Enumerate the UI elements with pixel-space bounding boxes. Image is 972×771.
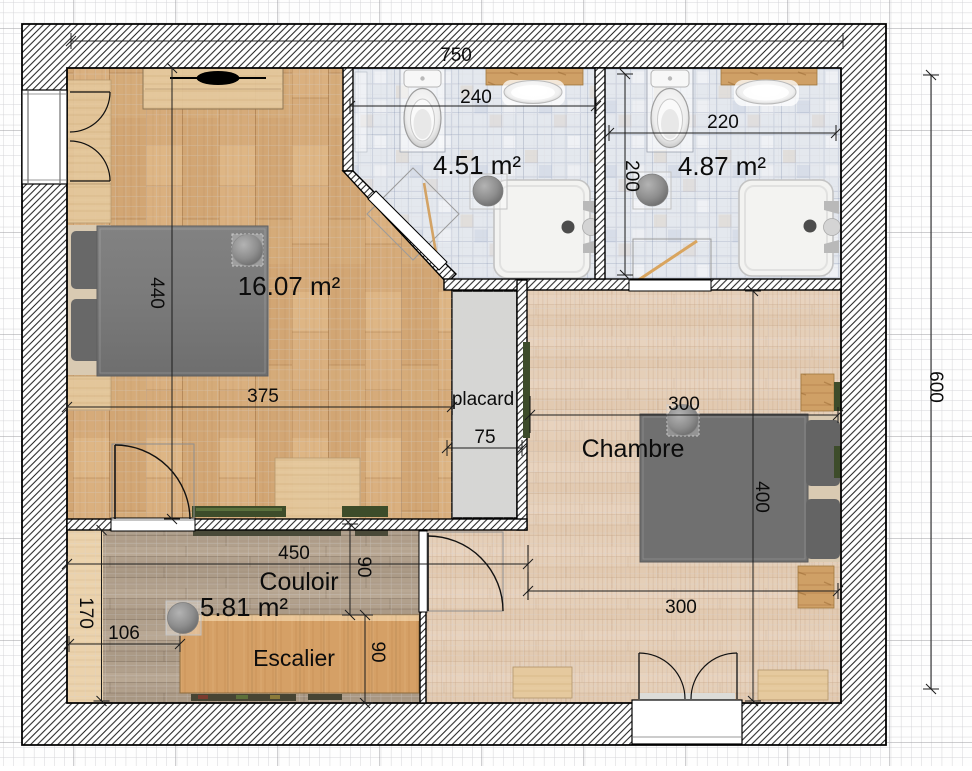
svg-text:170: 170 xyxy=(75,597,96,629)
svg-text:5.81 m²: 5.81 m² xyxy=(200,592,288,622)
svg-text:440: 440 xyxy=(146,277,167,309)
svg-text:220: 220 xyxy=(707,112,739,133)
svg-text:106: 106 xyxy=(108,623,140,644)
svg-text:240: 240 xyxy=(460,87,492,108)
svg-text:450: 450 xyxy=(278,543,310,564)
svg-text:300: 300 xyxy=(665,597,697,618)
svg-text:600: 600 xyxy=(925,371,946,403)
svg-text:Chambre: Chambre xyxy=(582,435,685,463)
svg-text:Escalier: Escalier xyxy=(253,645,335,671)
svg-text:200: 200 xyxy=(621,160,642,192)
svg-text:75: 75 xyxy=(474,427,495,448)
svg-text:4.51 m²: 4.51 m² xyxy=(433,150,521,180)
svg-text:placard: placard xyxy=(452,389,514,410)
svg-text:750: 750 xyxy=(440,45,472,66)
svg-text:375: 375 xyxy=(247,386,279,407)
svg-text:4.87 m²: 4.87 m² xyxy=(678,151,766,181)
svg-text:300: 300 xyxy=(668,394,700,415)
svg-text:90: 90 xyxy=(353,556,374,577)
svg-text:90: 90 xyxy=(367,641,388,662)
svg-text:400: 400 xyxy=(751,481,772,513)
svg-text:16.07 m²: 16.07 m² xyxy=(238,271,341,301)
